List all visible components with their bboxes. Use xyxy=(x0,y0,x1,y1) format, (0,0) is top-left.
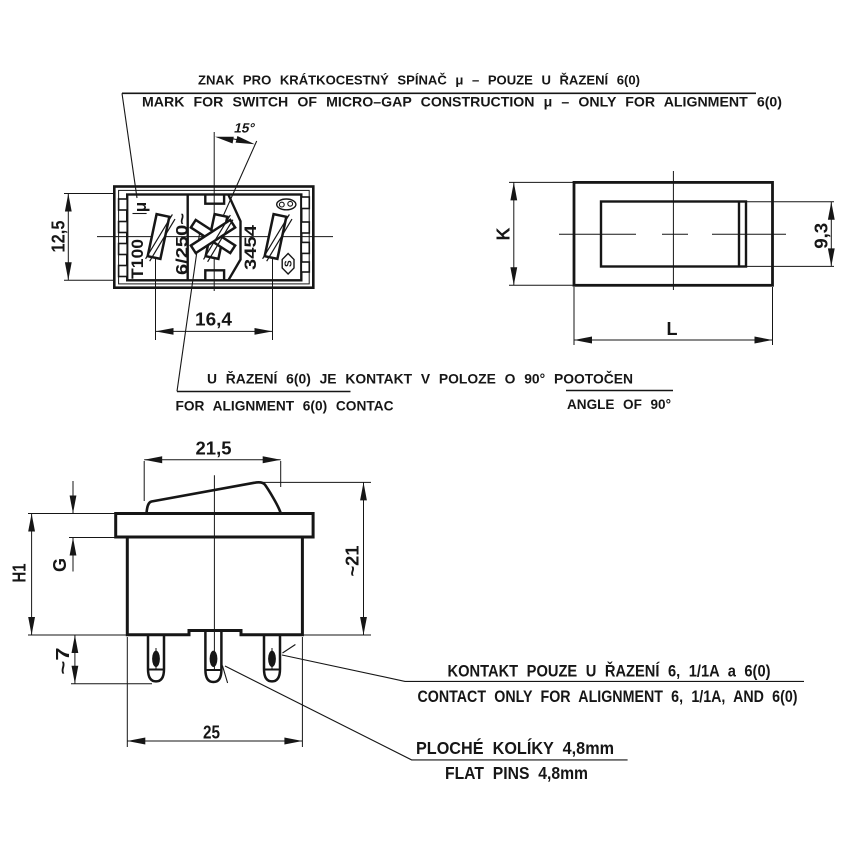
svg-text:~7: ~7 xyxy=(53,648,73,675)
svg-text:MARK FOR SWITCH OF MICRO–G: MARK FOR SWITCH OF MICRO–GAP CONSTRUCTIO… xyxy=(142,95,782,110)
svg-text:L: L xyxy=(667,319,678,339)
svg-text:U ŘAZENÍ 6(0) JE KONTAKT: U ŘAZENÍ 6(0) JE KONTAKT V POLOZE O 90° … xyxy=(207,369,633,386)
svg-text:PLOCHÉ KOLÍKY 4,8mm: PLOCHÉ KOLÍKY 4,8mm xyxy=(416,737,614,758)
svg-text:K: K xyxy=(494,228,514,241)
svg-text:FOR ALIGNMENT 6(0) CONTAC: FOR ALIGNMENT 6(0) CONTAC xyxy=(176,398,394,414)
svg-text:ANGLE OF 90°: ANGLE OF 90° xyxy=(567,396,671,412)
svg-text:3454: 3454 xyxy=(241,224,260,270)
svg-text:ZNAK PRO KRÁTKOCESTNÝ SPÍNA: ZNAK PRO KRÁTKOCESTNÝ SPÍNAČ μ – POUZE U… xyxy=(198,73,640,88)
svg-text:μ: μ xyxy=(131,202,150,212)
svg-text:~21: ~21 xyxy=(343,546,363,577)
svg-text:S: S xyxy=(284,260,295,267)
svg-text:H1: H1 xyxy=(10,564,30,583)
svg-text:15°: 15° xyxy=(233,121,257,136)
svg-text:T100: T100 xyxy=(128,239,147,279)
svg-text:25: 25 xyxy=(203,723,220,743)
svg-text:9,3: 9,3 xyxy=(812,223,832,249)
svg-text:KONTAKT POUZE U ŘAZENÍ 6,: KONTAKT POUZE U ŘAZENÍ 6, 1/1A a 6(0) xyxy=(448,661,771,680)
svg-text:6/250~: 6/250~ xyxy=(172,213,191,275)
svg-text:21,5: 21,5 xyxy=(196,439,232,459)
svg-text:CONTACT ONLY FOR ALIGNMENT: CONTACT ONLY FOR ALIGNMENT 6, 1/1A, AND … xyxy=(418,688,798,706)
svg-text:12,5: 12,5 xyxy=(49,221,69,253)
svg-text:16,4: 16,4 xyxy=(195,310,232,330)
svg-text:FLAT PINS 4,8mm: FLAT PINS 4,8mm xyxy=(445,763,588,783)
svg-text:G: G xyxy=(50,558,70,572)
